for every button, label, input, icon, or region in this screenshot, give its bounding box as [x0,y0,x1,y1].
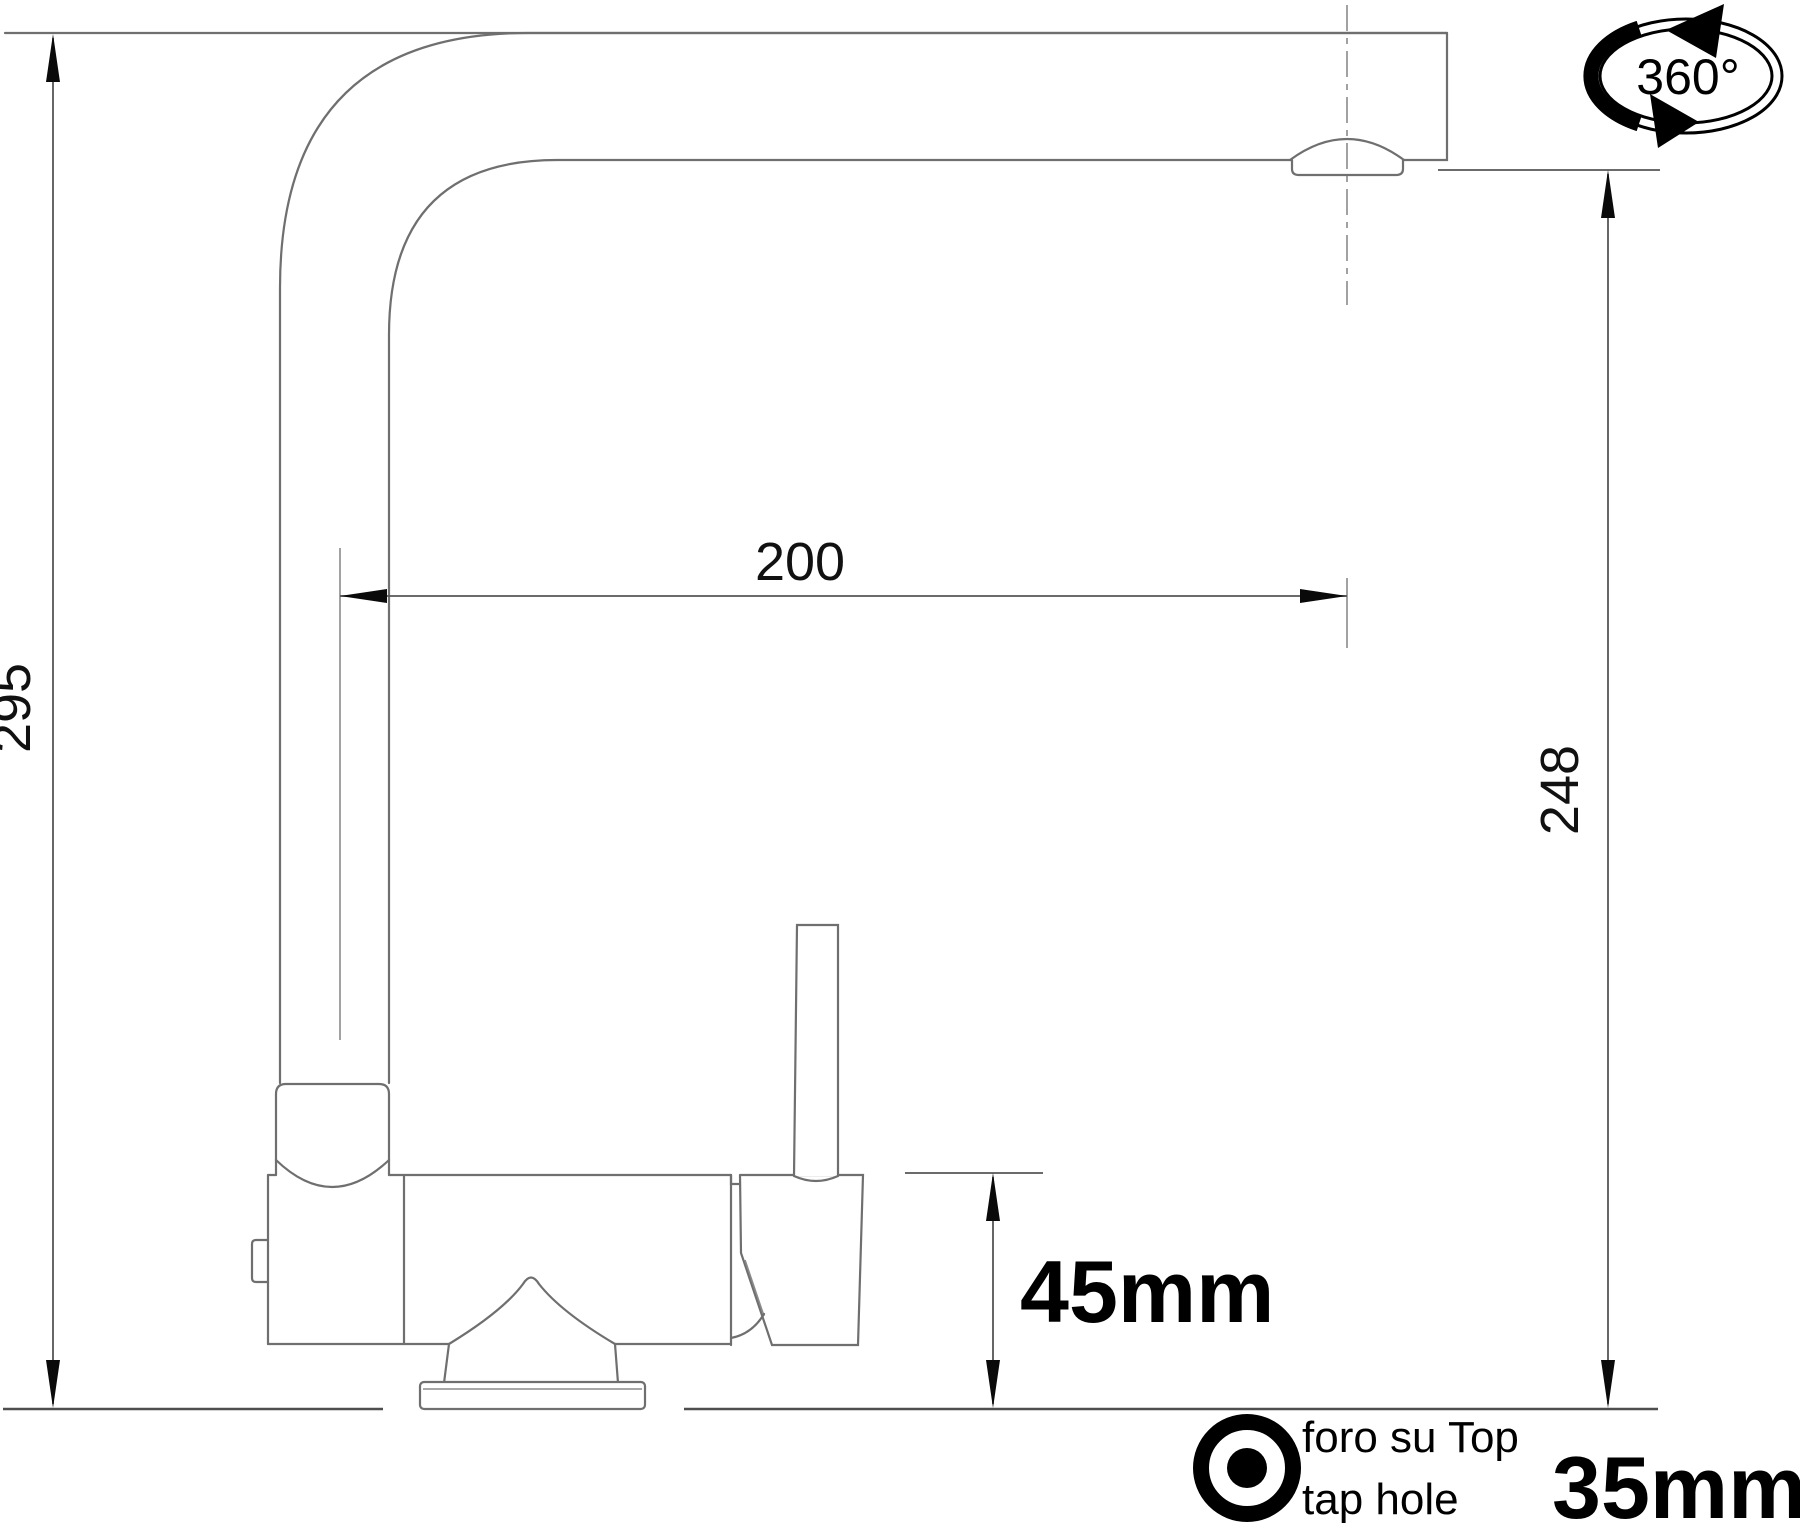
dim-45-label: 45mm [1020,1242,1274,1341]
dim-200-arrow-left [340,589,387,603]
dim-45-arrow-up [986,1173,1000,1221]
cone-foot-left [444,1344,449,1383]
base-plate-outline [420,1382,645,1409]
faucet-dimension-drawing: 295 200 248 45mm 360° foro su Top ta [0,0,1800,1531]
faucet-body [252,1175,731,1345]
dim-total-height: 295 [0,34,60,1408]
dim-200-arrow-right [1300,589,1347,603]
mounting-cone [444,1278,618,1384]
joint-fill [276,1084,389,1175]
cone-foot-right [615,1344,618,1383]
tap-hole-label-italian: foro su Top [1302,1413,1519,1462]
dim-body-height: 45mm [905,1173,1274,1408]
faucet-swivel-joint [276,1084,389,1187]
handle-base-notch [731,1175,740,1184]
tap-hole-annotation: foro su Top tap hole 35mm [1201,1413,1800,1531]
dim-295-label: 295 [0,663,42,753]
handle-base-fill [740,1175,863,1345]
spout-outer-contour [280,33,1447,1083]
dim-295-arrow-up [46,34,60,82]
side-port-nub [252,1240,268,1282]
rotation-360-icon: 360° [1591,4,1777,148]
base-plate [420,1382,645,1409]
dim-248-arrow-up [1601,170,1615,218]
technical-drawing-canvas: 295 200 248 45mm 360° foro su Top ta [0,0,1800,1531]
rotation-band-solid-left [1591,28,1639,124]
dim-248-label: 248 [1530,745,1590,835]
faucet-handle [731,925,863,1345]
spout-end-edge [1403,33,1447,160]
dim-outlet-height: 248 [1438,170,1660,1408]
faucet-spout-tube [280,33,1447,1083]
dim-45-arrow-down [986,1360,1000,1408]
tap-hole-label-english: tap hole [1302,1475,1459,1524]
dim-248-arrow-down [1601,1360,1615,1408]
dim-200-label: 200 [755,532,845,592]
lever-fill [794,925,838,1176]
spout-inner-contour [389,160,1292,1083]
handle-joint-arc [731,1314,764,1338]
dim-spout-reach: 200 [340,532,1347,603]
tap-hole-diameter-label: 35mm [1552,1438,1800,1531]
cone-contour [449,1278,615,1345]
rotation-360-label: 360° [1636,49,1739,105]
dim-295-arrow-down [46,1360,60,1408]
tap-hole-icon-dot [1227,1448,1267,1488]
